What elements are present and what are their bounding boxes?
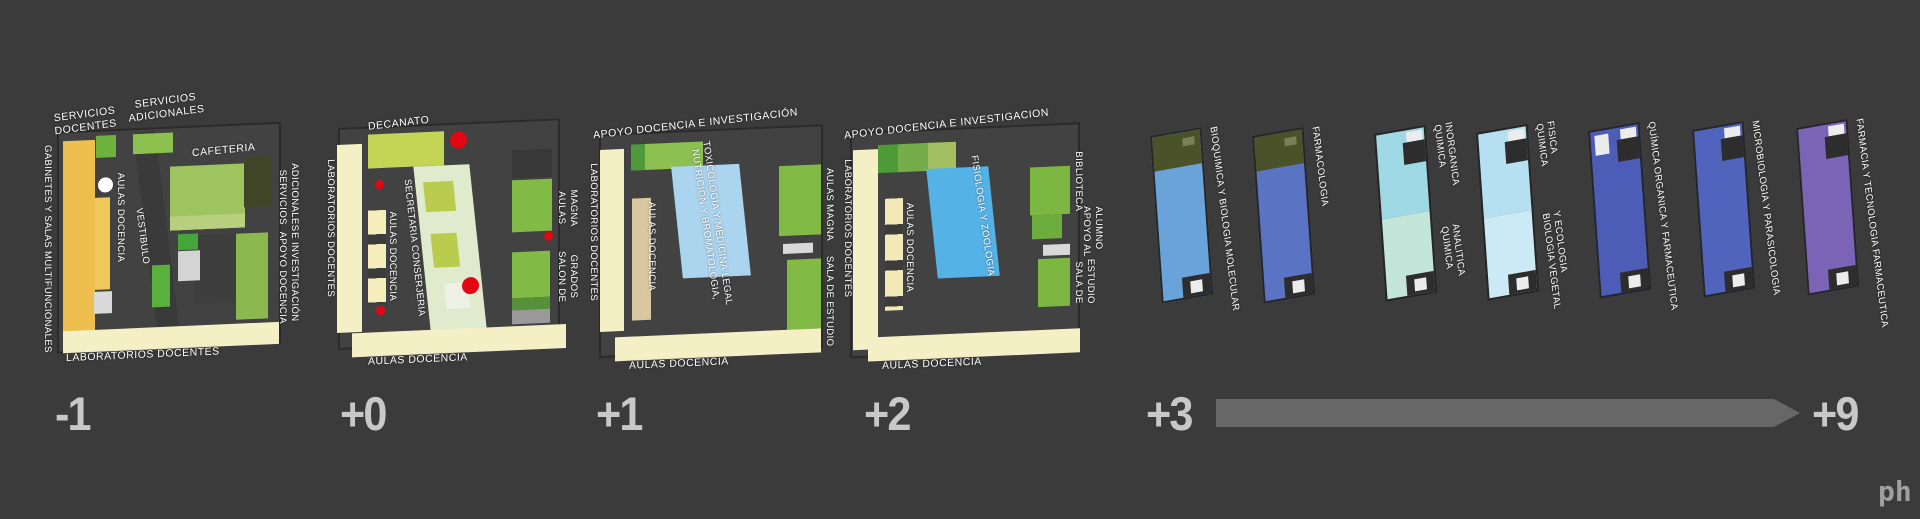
floor-number-plus-2: +2 (864, 386, 910, 441)
salon-grados-block (512, 251, 550, 299)
white-block (1043, 244, 1070, 256)
gabinetes-wing (63, 140, 95, 333)
tower-floor-microbiologia: MICROBIOLOGIA Y PARASICOLOGIA (1692, 115, 1794, 364)
tower-body (1252, 127, 1315, 304)
tower-label-top: QUIMICA INORGANICA (1432, 121, 1461, 189)
laboratorios-wing (337, 144, 362, 333)
tower-floor-quimica-inorganica-analitica: QUIMICA INORGANICA QUIMICA ANALITICA (1374, 119, 1476, 368)
aulas-magna-label: AULAS MAGNA (823, 166, 835, 245)
tower-label: MICROBIOLOGIA Y PARASICOLOGIA (1750, 119, 1782, 296)
tower-body (1476, 124, 1539, 301)
tower-body (1796, 119, 1859, 296)
floor-number-plus-9: +9 (1812, 386, 1858, 441)
decanato-block (368, 131, 444, 168)
servicios-adicionales-top-label: SERVICIOS ADICIONALES (127, 90, 205, 126)
aulas-docencia-strip (95, 197, 110, 290)
laboratorios-label: LABORATORIOS DOCENTES (324, 148, 336, 309)
right-arrow (1216, 399, 1774, 427)
aulas-magna-block (779, 164, 821, 236)
apoyo-alumno-label: APOYO AL ALUMNO (1080, 205, 1104, 252)
tower-floor-quimica-organica: QUÍMICA ORGANICA Y FARMACEUTICA (1588, 116, 1690, 365)
white-block (178, 250, 200, 281)
apoyo-block (236, 232, 268, 319)
aulas-magna-label: AULAS MAGNA (555, 177, 579, 238)
biblioteca-label: BIBLIOTECA (1072, 150, 1084, 213)
tower-floor-quimica-fisica-biologia: QUIMICA FISICA BIOLOGIA VEGETAL Y ECOLOG… (1476, 118, 1578, 367)
aulas-docencia-left-label: AULAS DOCENCIA (645, 201, 657, 292)
aulas-docencia-left-label: AULAS DOCENCIA (903, 202, 915, 293)
sala-estudio-block (787, 258, 821, 329)
aulas-docencia-blocks (368, 210, 386, 305)
gray-block (512, 309, 550, 325)
floor-number-plus-0: +0 (340, 386, 386, 441)
green-block (178, 233, 198, 250)
green-dark-block (878, 144, 898, 173)
green-dark-block (631, 144, 645, 171)
ph-logo: ph (1878, 478, 1912, 506)
aulas-docencia-label: AULAS DOCENCIA (114, 173, 126, 264)
tower-body (1150, 127, 1213, 304)
servicios-adicionales-right-label: SERVICIOS ADICIONALES (276, 157, 300, 238)
floor-number-plus-1: +1 (596, 386, 642, 441)
tower-floor-farmacologia: FARMACOLOGIA (1252, 121, 1354, 370)
servicios-adicionales-block (133, 132, 173, 154)
green-striped-block (152, 265, 170, 308)
laboratorios-label: LABORATORIOS DOCENTES (587, 152, 599, 313)
tower-label: FARMACOLOGIA (1310, 125, 1331, 207)
faculty-floor-diagram: SERVICIOS DOCENTES SERVICIOS ADICIONALES… (0, 0, 1920, 519)
tower-floor-bioquimica: BIOQUIMICA Y BIOLOGIA MOLECULAR (1150, 121, 1252, 370)
tower-label-bottom: BIOLOGIA VEGETAL Y ECOLOGIA (1540, 210, 1573, 311)
tower-label-bottom: QUIMICA ANALITICA (1439, 223, 1467, 280)
servicios-docentes-block (96, 135, 116, 158)
apoyo-label: APOYO DOCENCIA E INVESTIGACIÓN (276, 227, 300, 328)
aulas-docencia-blocks (885, 198, 903, 311)
tower-label: FARMACIA Y TECNOLOGIA FARMACEUTICA (1854, 117, 1891, 328)
sala-estudio-label: SALA DE ESTUDIO (823, 256, 835, 339)
service-block (94, 291, 112, 314)
laboratorios-wing (600, 149, 624, 332)
aulas-docencia-left-label: AULAS DOCENCIA (386, 211, 398, 302)
laboratorios-label: LABORATORIOS DOCENTES (841, 148, 853, 309)
floor-plan-plus-0: DECANATO LABORATORIOS DOCENTES AULAS DOC… (322, 89, 580, 378)
tower-body (1588, 122, 1651, 299)
salon-grados-label: SALON DE GRADOS (555, 247, 579, 306)
cafeteria-block (170, 163, 245, 230)
apoyo-alumno-block (1032, 214, 1062, 239)
floor-plan-plus-1: APOYO DOCENCIA E INVESTIGACIÓN LABORATOR… (585, 89, 843, 380)
sala-estudio-block (1038, 258, 1070, 307)
tower-floor-farmacia-tecnologia: FARMACIA Y TECNOLOGIA FARMACEUTICA (1796, 113, 1898, 362)
tower-body (1374, 125, 1437, 302)
floor-plan-minus-1: SERVICIOS DOCENTES SERVICIOS ADICIONALES… (30, 89, 292, 378)
laboratorios-wing (853, 149, 878, 350)
biblioteca-block (1030, 166, 1070, 216)
tower-label: BIOQUIMICA Y BIOLOGIA MOLECULAR (1208, 125, 1242, 312)
tower-body (1692, 121, 1755, 298)
green-mid-block (898, 143, 928, 172)
floor-plan-plus-2: APOYO DOCENCIA E INVESTIGACION LABORATOR… (840, 89, 1104, 381)
aulas-magna-block (512, 179, 552, 233)
green-light-block (928, 142, 956, 171)
dark-block (512, 149, 552, 179)
right-arrow-tip (1774, 399, 1800, 427)
gabinetes-label: GABINETES Y SALAS MULTIFUNCIONALES (41, 145, 53, 346)
floor-number-minus-1: -1 (55, 386, 90, 441)
sala-estudio-label: SALA DE ESTUDIO (1072, 256, 1096, 309)
floor-number-plus-3: +3 (1146, 386, 1192, 441)
tower-label-top: QUIMICA FISICA (1534, 120, 1561, 168)
dark-olive-block (244, 156, 272, 207)
white-block (783, 243, 813, 254)
